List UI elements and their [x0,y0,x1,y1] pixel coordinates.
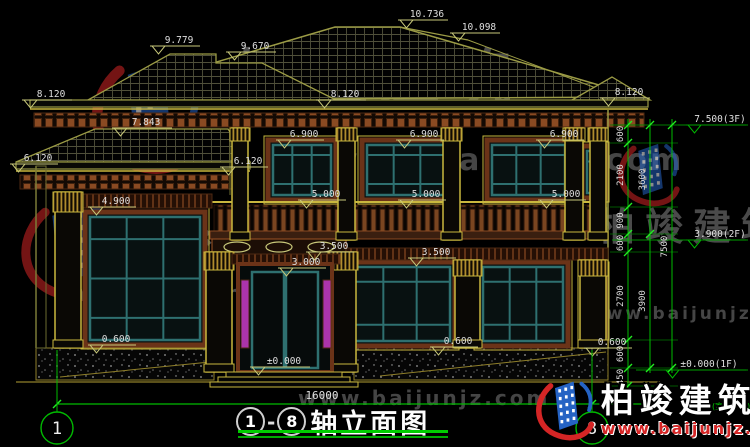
dimension-label: 3900 [638,290,648,312]
pilaster-shaft [443,128,460,240]
dimension-label: 600 [616,346,626,362]
pilaster-shaft [590,128,606,240]
elevation-label: 3.000 [292,257,321,268]
dimension-label: 7500 [660,236,670,258]
pilaster [53,192,83,348]
brand-url: www.baijunjz.com [601,419,750,438]
pilaster-base [336,232,357,240]
elevation-label: 8.120 [615,87,644,98]
step-2 [218,377,350,382]
sidelight-right [323,280,331,348]
lintel-band-wing [78,194,212,208]
elevation-label: 0.600 [444,336,473,347]
step-3 [210,382,358,387]
pilaster [230,128,250,240]
dimension-label: 900 [616,212,626,228]
pilaster-shaft [232,128,248,240]
brand-logo-icon [534,376,595,446]
balcony-balusters [214,205,601,231]
sidelight-left [241,280,249,348]
elevation-label: 5.000 [312,189,341,200]
pilaster-base [53,340,83,348]
pilaster [336,128,357,240]
pilaster-base [588,232,608,240]
pilaster-base [563,232,585,240]
window [81,208,209,349]
elevation-label: 10.098 [462,22,497,33]
pilaster [453,260,482,348]
pilaster [441,128,462,240]
elevation-drawing-screenshot: 柏竣建筑www.baijunjz.com 柏竣建筑www.baijunjz.co… [0,0,750,447]
elevation-label: 9.670 [241,41,270,52]
level-marker-triangle [688,125,701,133]
elevation-label: 8.120 [37,89,66,100]
elevation-label: 6.120 [24,153,53,164]
window [474,258,572,350]
pilaster [204,252,234,372]
pilaster-capital [336,128,357,141]
elevation-label: ±0.000 [267,356,302,367]
dimension-label: 600 [616,235,626,251]
window-frame [478,262,568,346]
pilaster [588,128,608,240]
elevation-label: 8.120 [331,89,360,100]
pilaster-capital [578,260,608,276]
pilaster-capital [204,252,234,270]
elevation-label: 3.500 [422,247,451,258]
elevation-label: 3.900(2F) [694,229,745,240]
level-marker-triangle [152,46,165,54]
axis-number-1: 1 [52,419,62,439]
pilaster-shaft [565,128,583,240]
dimension-label: 600 [616,126,626,142]
title-underline [238,430,448,433]
brand-name: 柏竣建筑 [601,384,750,419]
dimension-label: 2700 [616,285,626,307]
elevation-label: 5.000 [552,189,581,200]
elevation-label: 7.843 [132,117,161,128]
balcony-bottom-rail [210,231,604,239]
elevation-label: 7.500(3F) [694,114,745,125]
elevation-label: ±0.000(1F) [680,359,737,370]
total-width-label: 16000 [305,389,338,402]
elevation-label: 6.900 [550,129,579,140]
elevation-label: 5.000 [412,189,441,200]
pilaster-base [204,364,234,372]
pilaster-shaft [338,128,355,240]
pilaster-capital [453,260,482,276]
pilaster-shaft [55,192,81,348]
elevation-label: 6.120 [234,156,263,167]
title-underline-thin [238,436,448,438]
corner-quoin [36,166,46,348]
elevation-label: 4.900 [102,196,131,207]
pilaster-capital [588,128,608,141]
site-logo: 柏竣建筑 www.baijunjz.com [534,376,750,446]
pilaster-capital [53,192,83,212]
elevation-label: 10.736 [410,9,445,20]
level-marker-triangle [688,240,701,248]
dimension-label: 2100 [616,164,626,186]
pilaster-base [441,232,462,240]
window [358,136,456,204]
elevation-label: 6.900 [410,129,439,140]
pilaster [578,260,608,348]
lintel-band-right [346,248,608,260]
elevation-label: 3.500 [320,241,349,252]
window-frame [345,262,455,346]
elevation-label: 0.600 [102,334,131,345]
elevation-label: 9.779 [165,35,194,46]
window [341,258,459,350]
pilaster-capital [441,128,462,141]
dimension-label: 3600 [638,169,648,191]
eave-band [30,100,648,107]
dentil-frieze-main [34,113,644,127]
pilaster-capital [230,128,250,141]
pilaster [563,128,585,240]
elevation-label: 6.900 [290,129,319,140]
step-1 [226,372,342,377]
dentil-frieze-wing [20,175,246,189]
pilaster-base [230,232,250,240]
